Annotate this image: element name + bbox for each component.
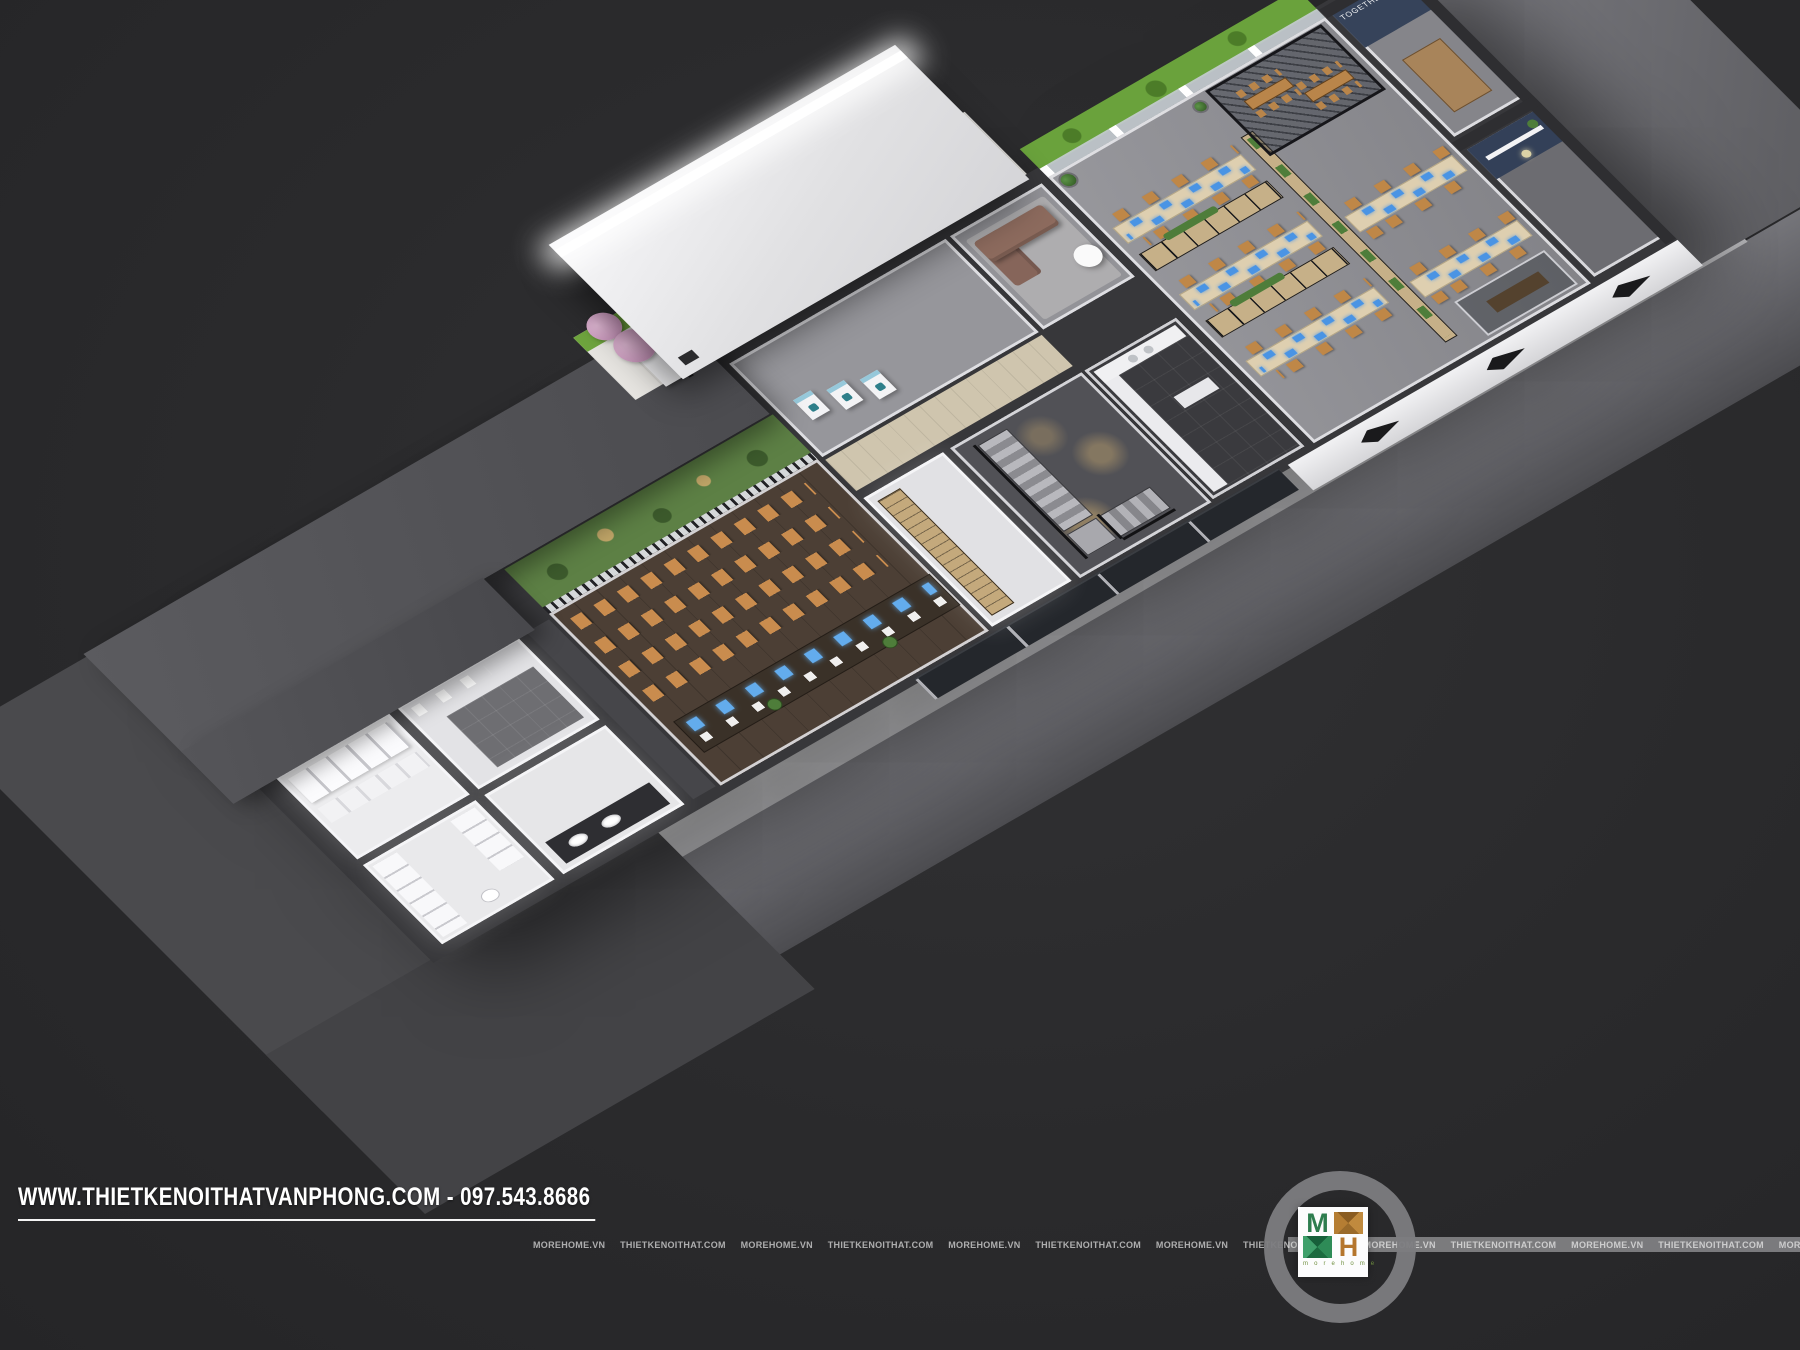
display-pedestal [793,390,830,420]
watermark-strip: MOREHOME.VN THIETKENOITHAT.COM MOREHOME.… [533,1238,1800,1253]
potted-plant [1054,169,1082,191]
render-canvas: TOGETHER WE STAND, DIVIDED WE [0,0,1800,1350]
website-label: WWW.THIETKENOITHATVANPHONG.COM - 097.543… [18,1183,595,1221]
display-model [807,403,820,413]
sink-basin [565,831,591,849]
logo-wordmark: m o r e h o m e [1303,1261,1363,1267]
logo-orange-triangles-icon [1334,1212,1363,1234]
logo-grid: M H [1303,1212,1363,1258]
appliance [1126,353,1140,364]
display-model [874,382,887,392]
appliance [1141,344,1155,355]
sink-basin [598,812,624,830]
display-pedestal [826,380,863,410]
display-pedestal [860,370,897,400]
kitchen-island [1174,377,1220,408]
toilet-fixture [477,886,502,905]
logo-letter-h: H [1334,1236,1363,1258]
logo-green-triangles-icon [1303,1236,1332,1258]
pendant-light [1519,148,1533,159]
canopy-led-strip [554,51,907,258]
logo-letter-m: M [1303,1212,1332,1234]
canopy-vent-block [678,350,700,366]
display-model [841,392,854,402]
logo-square: M H m o r e h o m e [1298,1207,1368,1277]
building-isometric: TOGETHER WE STAND, DIVIDED WE [0,0,1800,1228]
meeting-table [1486,271,1549,312]
desk-row [1335,146,1476,242]
potted-plant [1189,98,1213,116]
